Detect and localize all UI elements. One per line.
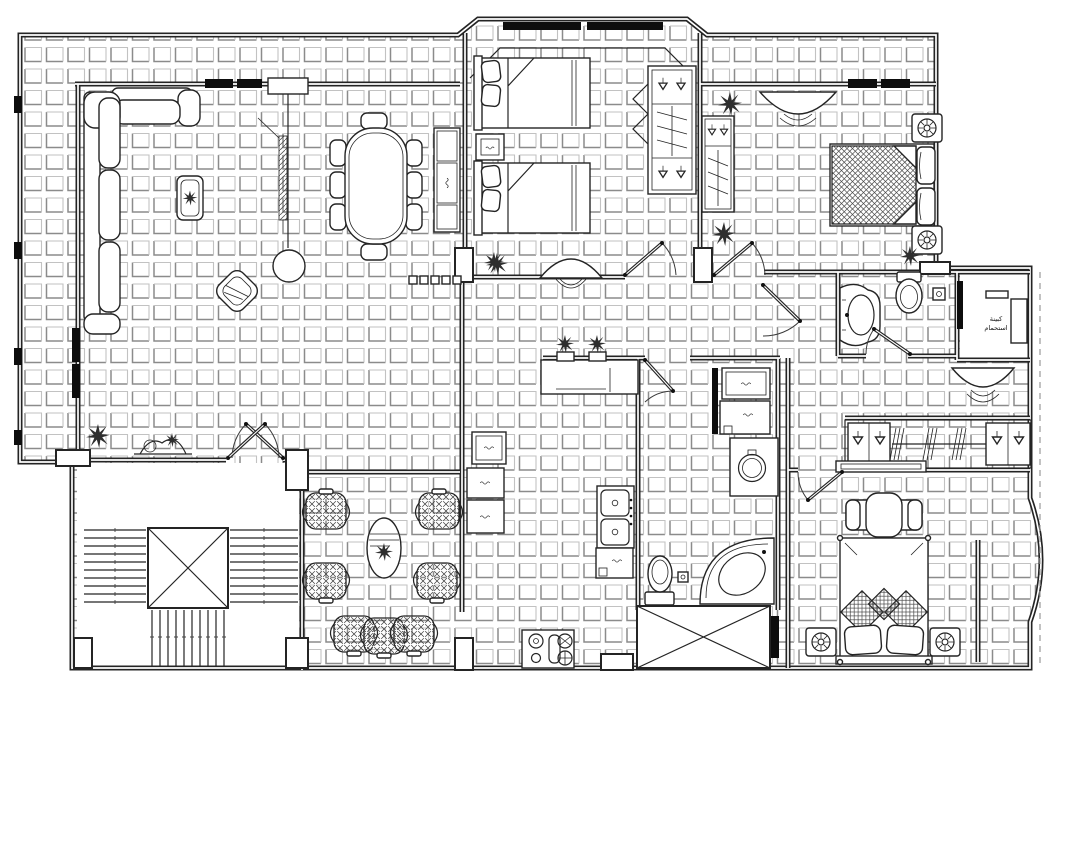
round-basin: [730, 438, 778, 496]
floor-plan-svg: كبينة استحمام: [0, 0, 1072, 851]
dining-chair: [361, 113, 387, 129]
dining-chair: [406, 172, 422, 198]
twin-bed-1: [474, 56, 590, 130]
shower-bench: [1011, 299, 1027, 343]
shower-room-label-line2: استحمام: [984, 324, 1007, 332]
shelf: [986, 291, 1008, 298]
oval-table: [367, 518, 401, 578]
window-strip: [503, 22, 581, 30]
window-strip: [14, 348, 22, 365]
window-strip: [587, 22, 663, 30]
window-strip: [72, 364, 80, 398]
window-strip: [14, 242, 22, 259]
shower-door-strip: [957, 281, 963, 329]
column: [286, 450, 308, 490]
double-bed: [836, 536, 932, 665]
washing-machine: [720, 401, 770, 434]
round-side-table: [273, 250, 305, 282]
armchair: [303, 563, 350, 603]
dining-chair: [330, 140, 346, 166]
armchair: [303, 489, 350, 529]
column: [694, 248, 712, 282]
column: [56, 450, 90, 466]
nightstand-lamp: [912, 114, 942, 142]
decor-squares: [409, 276, 461, 284]
window-strip: [848, 79, 877, 88]
window-strip: [72, 328, 80, 362]
foot-bench: [846, 493, 922, 537]
pillow: [844, 625, 882, 655]
washbasin: [840, 284, 880, 345]
dining-chair: [406, 140, 422, 166]
nightstand-lamp: [930, 628, 960, 656]
appliance-box: [467, 468, 504, 498]
coffee-table: [177, 176, 203, 220]
dining-chair: [406, 204, 422, 230]
kitchen-sink: [597, 486, 634, 548]
window-strip: [205, 79, 233, 88]
dining-chair: [330, 204, 346, 230]
toilet: [896, 272, 922, 313]
dining-chair: [330, 172, 346, 198]
wardrobe: [702, 116, 734, 212]
nightstand: [476, 134, 504, 160]
tv-screen: [279, 136, 287, 220]
window-strip: [14, 430, 22, 445]
dresser: [836, 461, 926, 472]
twin-bed-2: [474, 161, 590, 235]
dining-cabinet: [434, 128, 460, 232]
headboard: [836, 656, 932, 664]
column: [920, 262, 950, 274]
window-strip: [14, 96, 22, 113]
floor-drain: [933, 288, 945, 300]
armchair: [414, 563, 461, 603]
duct-strip: [712, 368, 718, 434]
appliance-box: [467, 500, 504, 533]
floor-drain: [678, 572, 688, 582]
service-shaft: [637, 606, 770, 668]
dining-chair: [361, 244, 387, 260]
column: [286, 638, 308, 668]
water-heater: [722, 368, 770, 399]
pillow: [481, 189, 501, 212]
column: [74, 638, 92, 668]
shower-room-label-line1: كبينة: [990, 315, 1003, 323]
pillow: [481, 165, 501, 188]
pillow: [886, 625, 924, 655]
nightstand-lamp: [912, 226, 942, 254]
armchair: [391, 616, 438, 656]
double-bed: [830, 144, 935, 226]
column: [455, 638, 473, 670]
wall-post: [770, 616, 779, 658]
dishwasher: [596, 548, 633, 578]
nightstand-lamp: [806, 628, 836, 656]
column: [601, 654, 633, 670]
window-strip: [881, 79, 910, 88]
stove: [522, 630, 574, 668]
armchair: [416, 489, 463, 529]
window-strip: [237, 79, 262, 88]
pillow: [481, 84, 501, 107]
pillow: [481, 60, 501, 83]
floor-plan-canvas: كبينة استحمام: [0, 0, 1072, 851]
dining-table: [345, 128, 407, 244]
appliance-box: [472, 432, 506, 464]
